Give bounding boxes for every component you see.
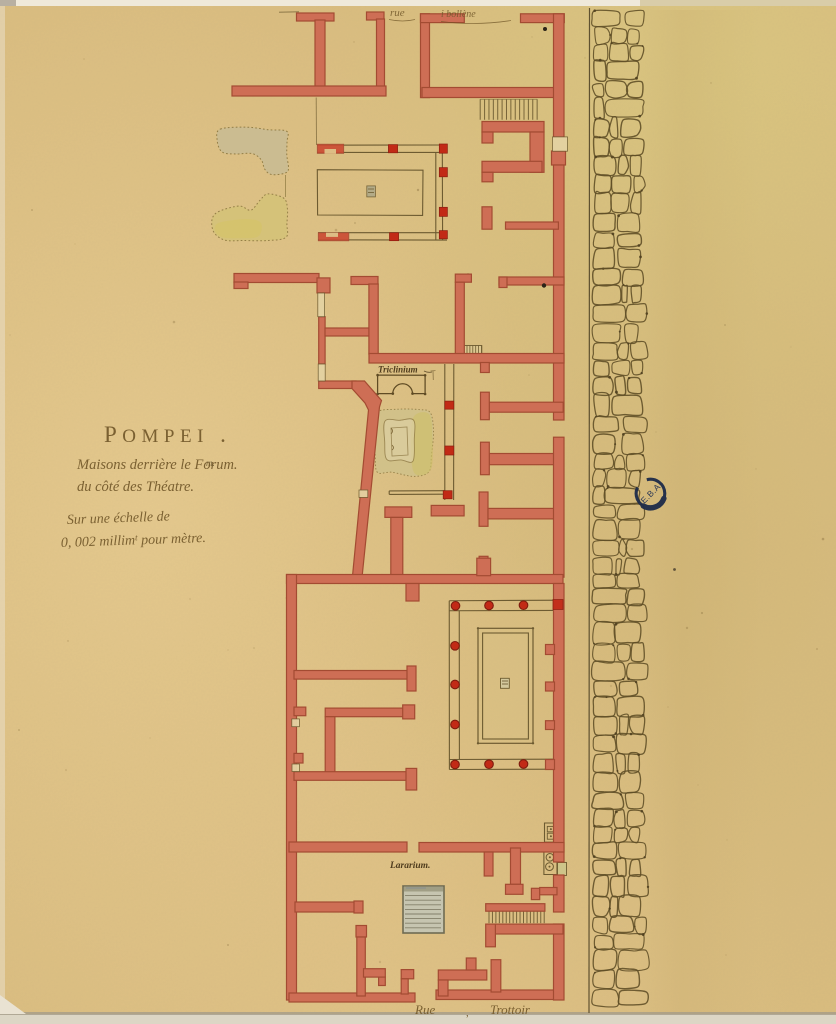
svg-text:POMPEI .: POMPEI . [104,422,231,447]
svg-text:Triclinium: Triclinium [378,365,418,375]
svg-text:rue: rue [390,7,405,19]
svg-text:,: , [466,1007,469,1019]
svg-text:Rue: Rue [414,1002,435,1017]
svg-text:Maisons derrière le Forum.: Maisons derrière le Forum. [76,457,238,473]
svg-text:Lararium.: Lararium. [389,861,430,871]
svg-text:Trottoir: Trottoir [490,1002,531,1017]
svg-text:i bollène: i bollène [441,9,476,20]
svg-text:du côté des Théatre.: du côté des Théatre. [77,479,194,495]
